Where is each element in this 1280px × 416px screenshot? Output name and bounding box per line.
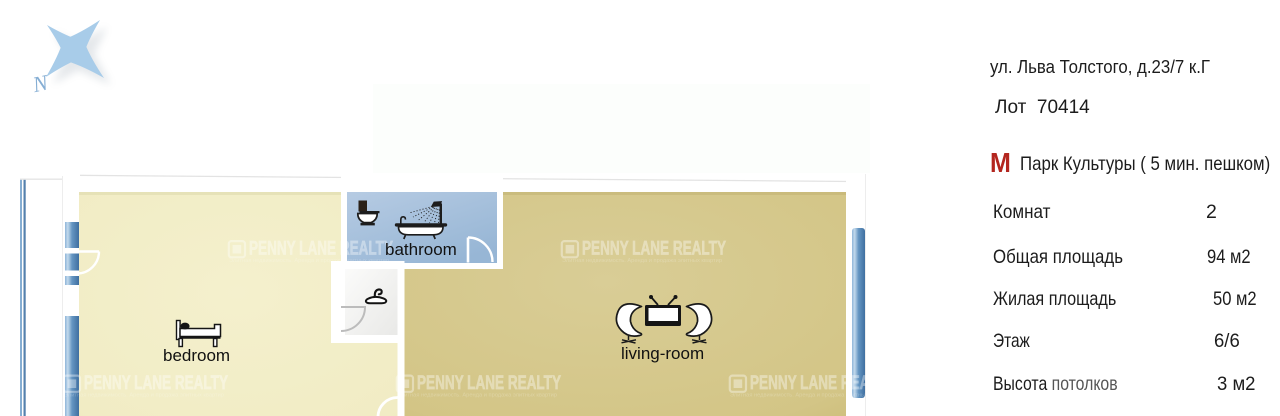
svg-text:Элитная недвижимость. Аренда и: Элитная недвижимость. Аренда и продажа э… — [730, 393, 890, 399]
svg-text:bathroom: bathroom — [385, 240, 457, 259]
svg-text:PENNY LANE REALTY: PENNY LANE REALTY — [750, 373, 894, 394]
svg-text:PENNY LANE REALTY: PENNY LANE REALTY — [582, 239, 726, 260]
svg-text:Элитная недвижимость. Аренда и: Элитная недвижимость. Аренда и продажа э… — [229, 258, 389, 264]
svg-text:Элитная недвижимость. Аренда и: Элитная недвижимость. Аренда и продажа э… — [64, 393, 224, 399]
svg-text:bedroom: bedroom — [163, 346, 230, 365]
svg-text:PENNY LANE REALTY: PENNY LANE REALTY — [84, 373, 228, 394]
svg-text:living-room: living-room — [621, 344, 704, 363]
svg-text:Элитная недвижимость. Аренда и: Элитная недвижимость. Аренда и продажа э… — [397, 393, 557, 399]
svg-text:PENNY LANE REALTY: PENNY LANE REALTY — [249, 239, 393, 260]
svg-text:Элитная недвижимость. Аренда и: Элитная недвижимость. Аренда и продажа э… — [562, 258, 722, 264]
svg-text:PENNY LANE REALTY: PENNY LANE REALTY — [417, 373, 561, 394]
